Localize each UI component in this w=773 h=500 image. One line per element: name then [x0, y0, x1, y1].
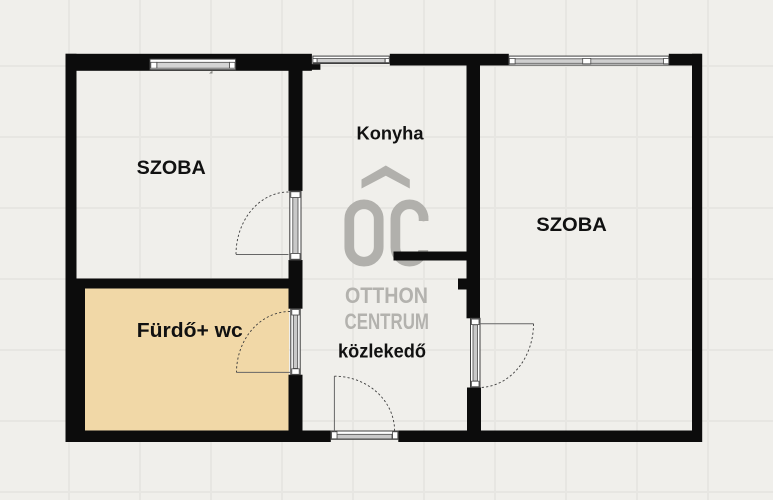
svg-text:SZOBA: SZOBA [137, 158, 206, 179]
svg-text:Fürdő+ wc: Fürdő+ wc [137, 320, 243, 342]
svg-text:közlekedő: közlekedő [338, 342, 426, 363]
svg-text:OTTHON: OTTHON [345, 283, 428, 308]
svg-text:Konyha: Konyha [357, 124, 425, 144]
svg-text:SZOBA: SZOBA [536, 214, 607, 236]
svg-text:CENTRUM: CENTRUM [345, 309, 430, 334]
